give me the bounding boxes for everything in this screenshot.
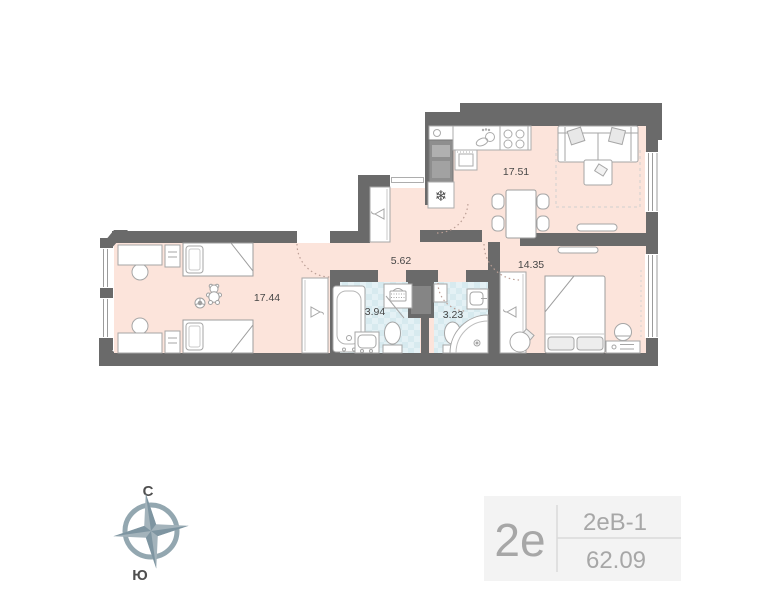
hallway-area-label: 5.62 — [391, 255, 412, 267]
chair — [132, 264, 148, 280]
children-nightstand-bottom — [165, 331, 180, 353]
radiator — [558, 247, 598, 253]
unit-badge: 2е 2еВ-1 62.09 — [484, 496, 681, 581]
children-area-label: 17.44 — [254, 292, 280, 304]
desk-chair — [615, 324, 632, 341]
living-room-window — [645, 152, 659, 212]
layout-code: 2еВ-1 — [583, 509, 647, 536]
stove-icon — [500, 126, 528, 150]
double-bed — [545, 276, 605, 353]
children-window-bottom — [99, 298, 114, 338]
oven-icon — [455, 150, 477, 170]
wc-area-label: 3.23 — [443, 309, 464, 321]
compass-rose: С Ю — [108, 483, 194, 584]
dining-chair — [537, 216, 549, 231]
compass-star — [108, 488, 194, 574]
fridge-icon: ❄ — [428, 182, 454, 208]
floor-plan-svg: ❄ — [0, 0, 760, 600]
dining-chair — [492, 216, 504, 231]
dining-chair — [537, 194, 549, 209]
children-window-top — [99, 248, 114, 288]
children-nightstand-top — [165, 245, 180, 267]
compass-south-label: Ю — [132, 567, 147, 584]
ball-icon — [195, 298, 205, 308]
children-wardrobe — [302, 278, 328, 353]
coffee-table — [584, 160, 612, 185]
washbasin — [355, 332, 379, 353]
laundry-basket-icon — [384, 284, 412, 308]
sofa-pillow — [609, 128, 626, 145]
pillow — [548, 337, 574, 350]
total-area: 62.09 — [586, 547, 646, 574]
snowflake-icon: ❄ — [435, 188, 448, 205]
radiator — [577, 224, 617, 231]
bathroom-area-label: 3.94 — [365, 306, 386, 318]
wc-shelf — [434, 284, 447, 302]
dining-table — [506, 190, 536, 238]
floor-plan-page: ❄ — [0, 0, 760, 600]
sofa — [558, 126, 638, 162]
bedroom-window — [645, 254, 659, 338]
chair — [132, 318, 148, 334]
bedroom-area-label: 14.35 — [518, 259, 544, 271]
toilet — [383, 322, 402, 353]
dining-chair — [492, 194, 504, 209]
wc-washbasin — [467, 289, 488, 309]
kitchen-tall-unit — [429, 140, 453, 183]
kitchen-living-area-label: 17.51 — [503, 166, 529, 178]
entrance-door — [390, 174, 425, 188]
hallway-closet — [370, 187, 390, 242]
children-bed-bottom — [183, 320, 253, 353]
pillow — [577, 337, 603, 350]
children-bed-top — [183, 243, 253, 276]
compass-north-label: С — [143, 483, 154, 500]
plan-code: 2е — [494, 514, 545, 566]
